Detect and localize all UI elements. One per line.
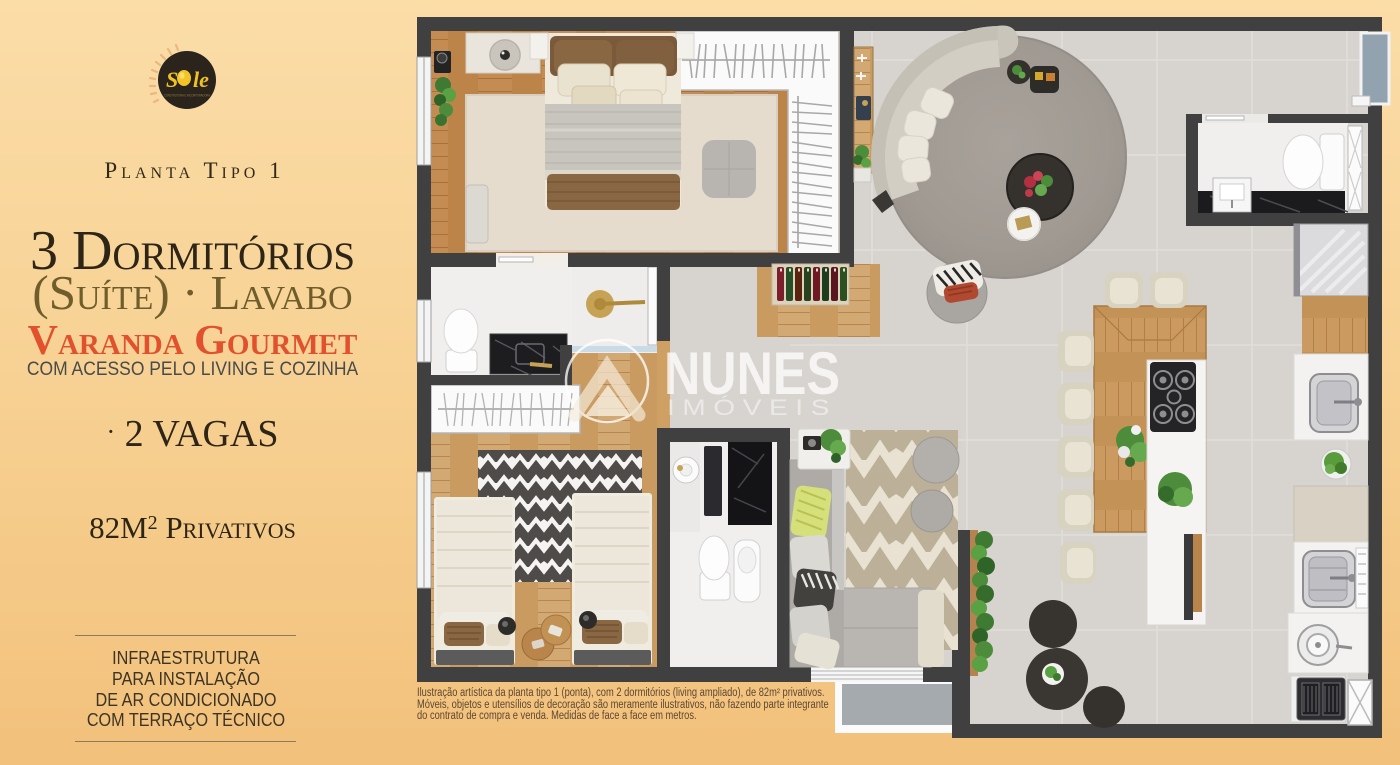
svg-text:le: le: [193, 67, 209, 92]
svg-text:IMÓVEIS: IMÓVEIS: [667, 395, 837, 420]
svg-text:S: S: [166, 67, 178, 92]
svg-text:CONSTRUTORA E INCORPORADORA: CONSTRUTORA E INCORPORADORA: [164, 94, 211, 98]
